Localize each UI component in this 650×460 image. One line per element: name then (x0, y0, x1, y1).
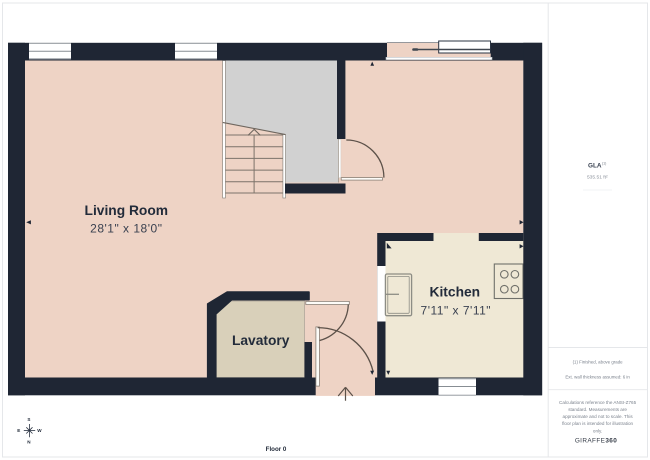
svg-text:Kitchen: Kitchen (430, 285, 481, 300)
svg-text:Living Room: Living Room (85, 203, 169, 218)
svg-text:S: S (27, 417, 30, 422)
svg-text:Lavatory: Lavatory (232, 333, 290, 348)
svg-text:Floor 0: Floor 0 (266, 446, 287, 453)
svg-text:GLA: GLA (588, 163, 602, 170)
svg-text:Calculations reference the ANS: Calculations reference the ANSI-Z765 (559, 400, 637, 405)
svg-text:Ext. wall thickness assumed: 6: Ext. wall thickness assumed: 6 in (565, 374, 630, 379)
svg-text:W: W (37, 428, 42, 433)
svg-text:535.51 ft²: 535.51 ft² (587, 174, 608, 180)
svg-text:only.: only. (593, 428, 602, 433)
svg-text:7'11" x 7'11": 7'11" x 7'11" (421, 304, 492, 318)
svg-text:E: E (17, 428, 20, 433)
svg-text:(1) Finished, above grade: (1) Finished, above grade (573, 359, 624, 364)
svg-text:floor plan is intended for ill: floor plan is intended for illustration (562, 421, 633, 426)
svg-text:standard. Measurements are: standard. Measurements are (568, 407, 627, 412)
svg-text:approximate and not to scale.: approximate and not to scale. This (563, 414, 634, 419)
svg-text:(1): (1) (602, 162, 606, 166)
svg-text:GIRAFFE360: GIRAFFE360 (575, 438, 617, 445)
svg-text:28'1" x 18'0": 28'1" x 18'0" (90, 222, 162, 236)
